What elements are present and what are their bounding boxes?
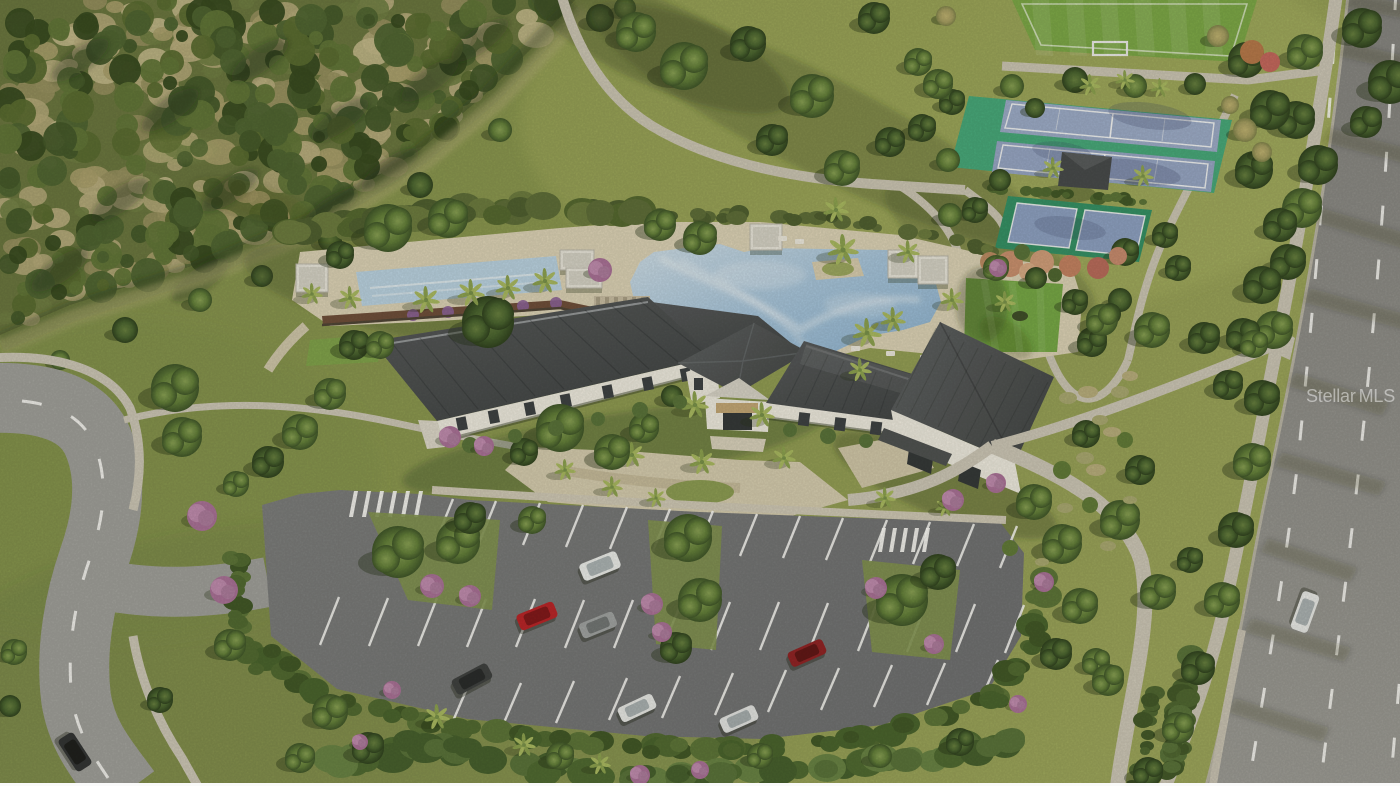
svg-text:StellarMLS: StellarMLS	[1306, 386, 1395, 406]
